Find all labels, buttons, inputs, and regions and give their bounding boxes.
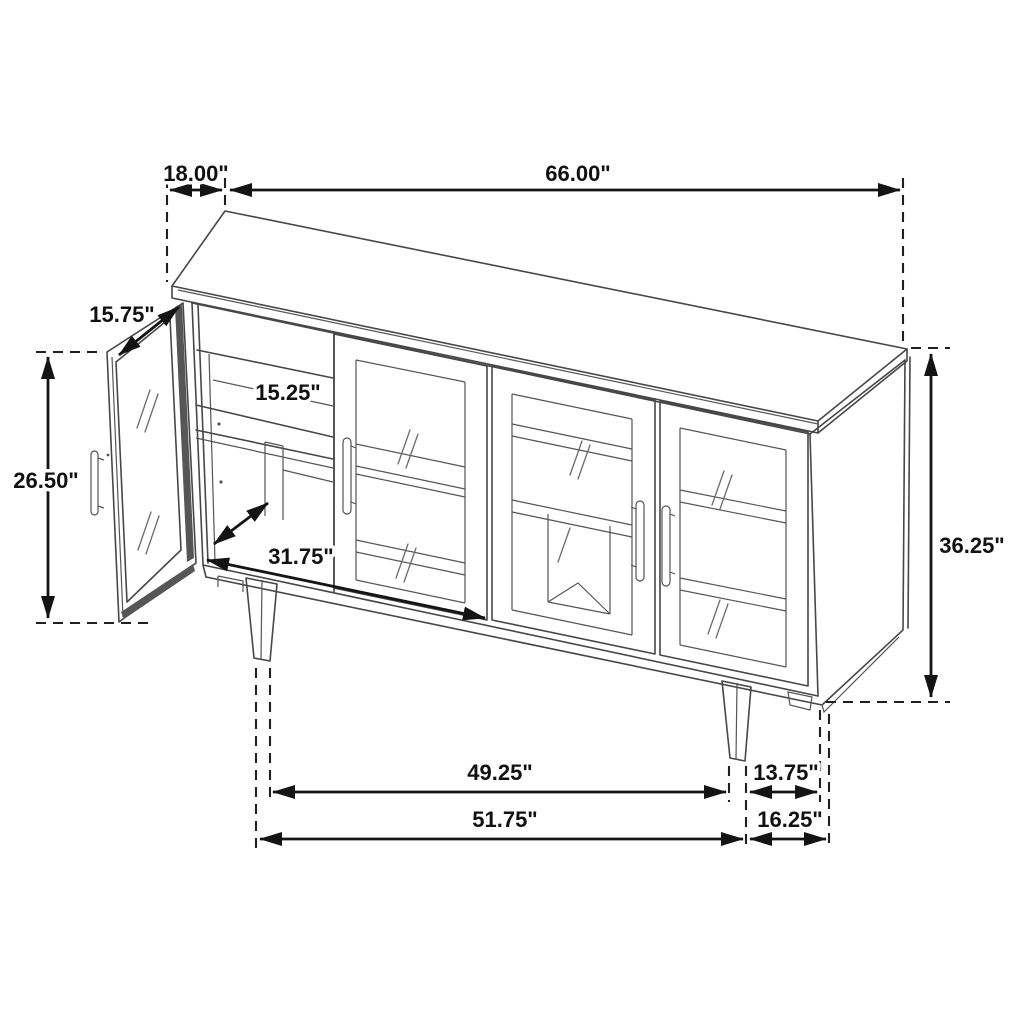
dim-legs-outer-span: 51.75"	[260, 807, 743, 839]
open-door-glass-pane	[116, 318, 181, 602]
glass-door-3	[492, 366, 655, 654]
dim-door-height-label: 26.50"	[13, 468, 78, 493]
door-4-handle	[662, 506, 675, 586]
legs	[246, 578, 751, 761]
dimension-annotations: 18.00" 66.00" 15.75" 26.50" 15.25" 31.75…	[13, 161, 1004, 848]
door-3-interior-cubby	[548, 514, 610, 614]
door-3-handle	[631, 501, 644, 581]
glass-door-2	[334, 334, 487, 620]
dim-interior-width-label: 31.75"	[268, 544, 333, 569]
open-door-handle	[91, 451, 109, 515]
open-glass-door	[91, 303, 196, 622]
furniture-dimension-diagram: 18.00" 66.00" 15.75" 26.50" 15.25" 31.75…	[0, 0, 1024, 1024]
dim-top-depth-label: 18.00"	[163, 161, 228, 186]
dim-legs-depth-inner: 13.75"	[750, 760, 819, 792]
dim-door-width-label: 15.75"	[89, 302, 154, 327]
dim-depth-arrow	[214, 503, 268, 544]
dim-legs-depth-outer-label: 16.25"	[757, 807, 822, 832]
cabinet-line-drawing	[91, 211, 910, 761]
dim-overall-height-label: 36.25"	[939, 533, 1004, 558]
dim-legs-outer-span-label: 51.75"	[472, 807, 537, 832]
cabinet-body	[192, 303, 910, 712]
dim-legs-inner-span: 49.25"	[273, 760, 726, 792]
dim-legs-depth-inner-label: 13.75"	[753, 760, 818, 785]
dim-door-height: 26.50"	[13, 352, 150, 623]
dim-shelf-depth-label: 15.25"	[255, 380, 320, 405]
dim-top-depth: 18.00"	[163, 161, 228, 190]
glass-door-4	[660, 401, 808, 686]
door-2-handle	[343, 438, 356, 514]
dim-top-width: 66.00"	[230, 161, 900, 190]
dim-top-width-label: 66.00"	[545, 161, 610, 186]
dim-legs-inner-span-label: 49.25"	[467, 760, 532, 785]
diagram-canvas: 18.00" 66.00" 15.75" 26.50" 15.25" 31.75…	[0, 0, 1024, 1024]
dim-legs-depth-outer: 16.25"	[750, 807, 826, 839]
